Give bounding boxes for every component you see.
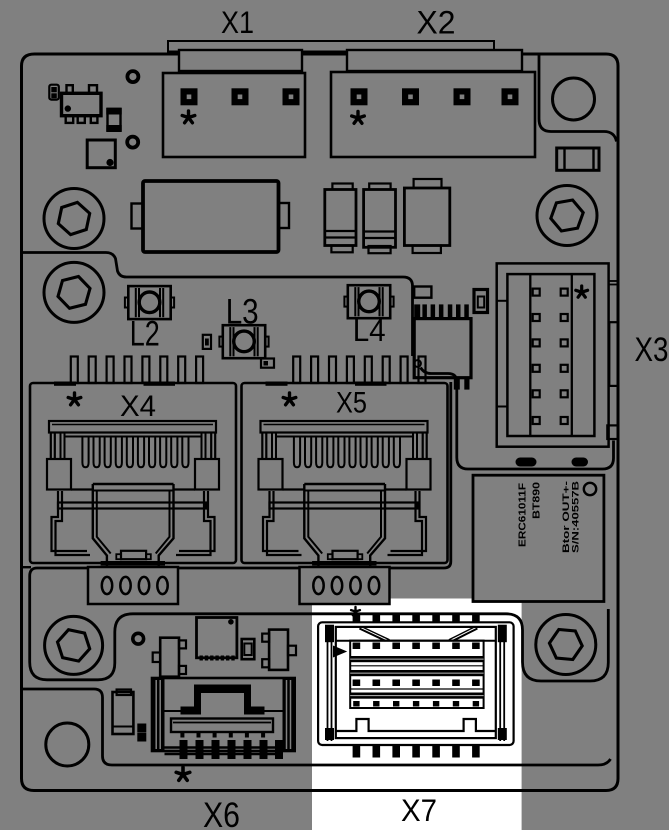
svg-text:X4: X4 bbox=[120, 390, 156, 423]
svg-text:X7: X7 bbox=[401, 792, 437, 828]
svg-text:L4: L4 bbox=[353, 312, 386, 348]
svg-text:Btor OUT+-: Btor OUT+- bbox=[561, 481, 571, 553]
svg-text:X1: X1 bbox=[221, 4, 254, 40]
svg-text:X5: X5 bbox=[336, 387, 367, 420]
svg-text:X3: X3 bbox=[635, 331, 669, 369]
svg-text:L3: L3 bbox=[226, 293, 259, 332]
svg-text:X6: X6 bbox=[203, 795, 240, 830]
svg-text:X2: X2 bbox=[417, 5, 456, 41]
svg-text:BT890: BT890 bbox=[531, 482, 543, 519]
svg-text:L2: L2 bbox=[130, 315, 160, 354]
svg-text:S/N:40557B: S/N:40557B bbox=[571, 480, 581, 553]
svg-text:ERC61011F: ERC61011F bbox=[517, 482, 529, 547]
